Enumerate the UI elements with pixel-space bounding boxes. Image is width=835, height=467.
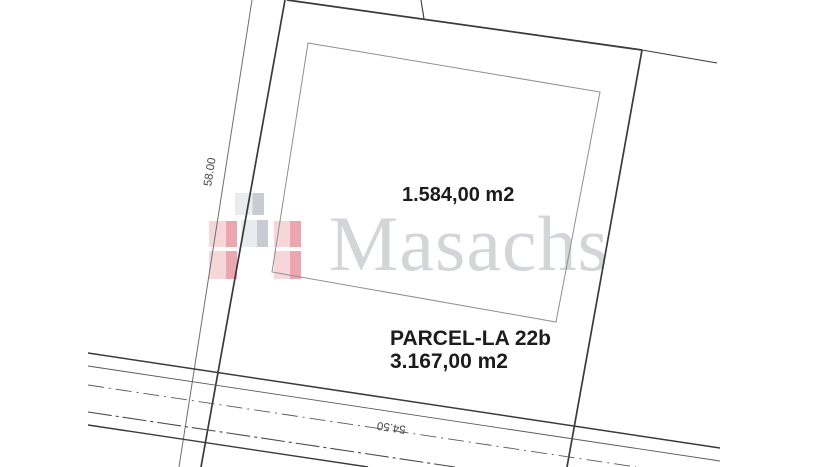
plan-linework (0, 0, 835, 467)
dimension-line-left (179, 0, 252, 467)
parcel-info: PARCEL-LA 22b 3.167,00 m2 (390, 327, 551, 373)
building-area-label: 1.584,00 m2 (402, 184, 514, 207)
road-axis-line (88, 385, 636, 467)
parcel-plan: Masachs 1.584,00 m2 PARCE (0, 0, 835, 467)
building-outline (272, 43, 600, 322)
parcel-name-label: PARCEL-LA 22b (390, 327, 551, 350)
parcel-area-label: 3.167,00 m2 (390, 350, 551, 373)
